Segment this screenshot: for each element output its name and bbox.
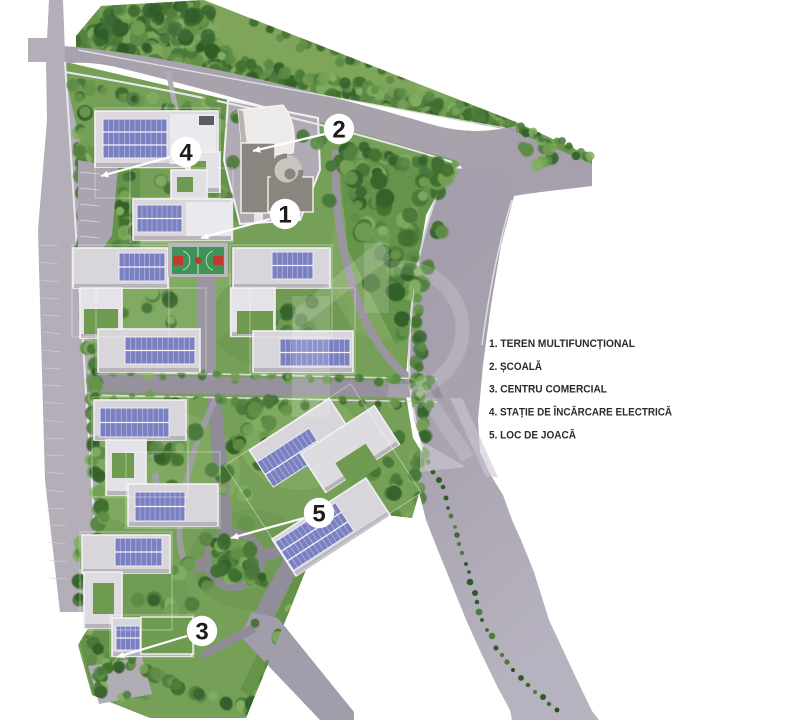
svg-text:2: 2 [332, 117, 345, 144]
svg-text:2. ȘCOALĂ: 2. ȘCOALĂ [489, 360, 542, 373]
svg-text:1. TEREN MULTIFUNCȚIONAL: 1. TEREN MULTIFUNCȚIONAL [489, 338, 635, 350]
svg-text:4: 4 [179, 140, 193, 167]
svg-text:3. CENTRU COMERCIAL: 3. CENTRU COMERCIAL [489, 384, 607, 396]
svg-text:4. STAȚIE DE ÎNCĂRCARE ELECTRI: 4. STAȚIE DE ÎNCĂRCARE ELECTRICĂ [489, 406, 672, 419]
svg-text:5: 5 [312, 501, 325, 528]
svg-text:1: 1 [278, 202, 291, 229]
svg-text:5. LOC DE JOACĂ: 5. LOC DE JOACĂ [489, 429, 576, 442]
svg-text:3: 3 [195, 619, 208, 646]
